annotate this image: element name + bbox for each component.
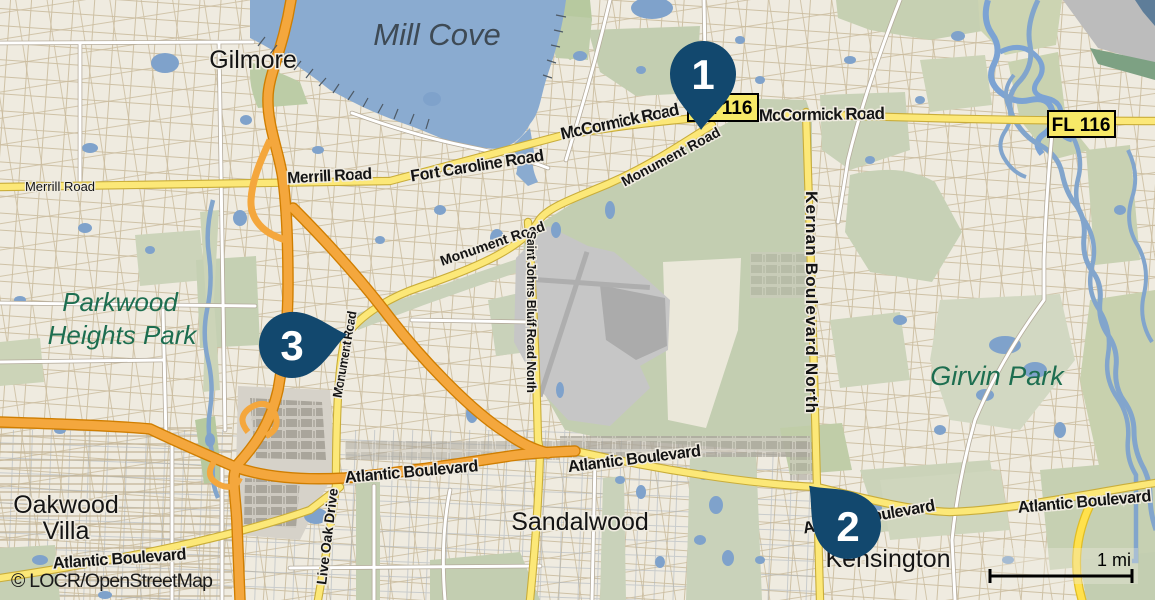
svg-text:2: 2 [836,503,859,550]
svg-text:Sandalwood: Sandalwood [511,508,649,536]
svg-text:Heights Park: Heights Park [48,320,199,350]
svg-text:3: 3 [280,322,303,369]
svg-text:Villa: Villa [43,517,90,545]
svg-text:McCormick Road: McCormick Road [759,104,885,125]
svg-text:Girvin Park: Girvin Park [930,361,1065,391]
svg-text:Mill Cove: Mill Cove [373,17,500,52]
svg-text:Saint Johns Bluff Road North: Saint Johns Bluff Road North [524,231,539,393]
svg-text:Oakwood: Oakwood [13,491,119,519]
svg-text:FL 116: FL 116 [1052,115,1111,136]
svg-text:Parkwood: Parkwood [62,287,179,317]
svg-text:© LOCR/OpenStreetMap: © LOCR/OpenStreetMap [11,570,213,592]
svg-text:Merrill Road: Merrill Road [25,179,95,194]
svg-text:1: 1 [691,51,714,98]
svg-text:Gilmore: Gilmore [209,46,297,74]
svg-text:1 mi: 1 mi [1097,550,1131,570]
svg-text:Kernan Boulevard North: Kernan Boulevard North [802,191,821,413]
